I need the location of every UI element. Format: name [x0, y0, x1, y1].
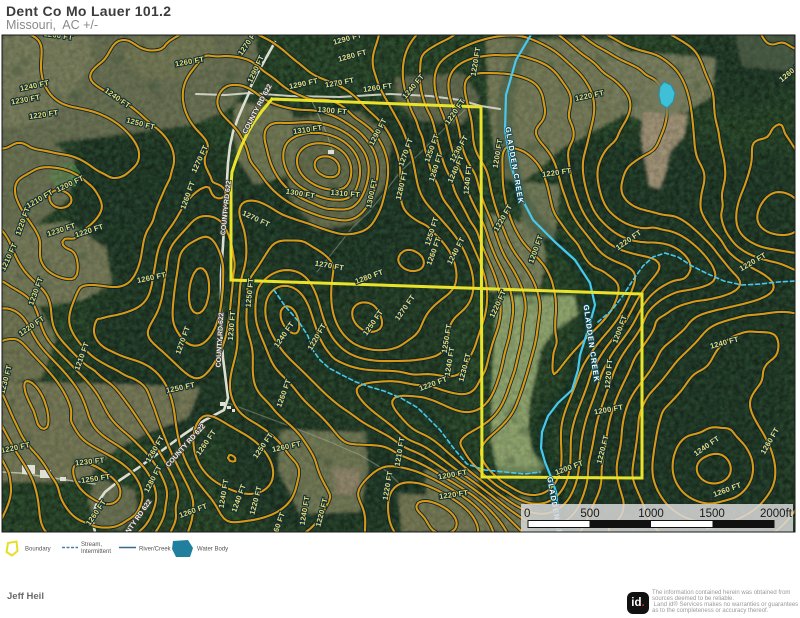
svg-text:500: 500 — [580, 508, 599, 520]
svg-text:0: 0 — [524, 508, 530, 520]
svg-text:Intermittent: Intermittent — [81, 549, 111, 555]
svg-text:Boundary: Boundary — [25, 547, 51, 553]
svg-text:Stream,: Stream, — [81, 542, 102, 548]
svg-text:2000ft: 2000ft — [760, 508, 793, 520]
svg-text:Water Body: Water Body — [197, 547, 228, 553]
svg-text:1500: 1500 — [699, 508, 725, 520]
svg-text:River/Creek: River/Creek — [139, 547, 172, 553]
svg-text:1000: 1000 — [638, 508, 664, 520]
